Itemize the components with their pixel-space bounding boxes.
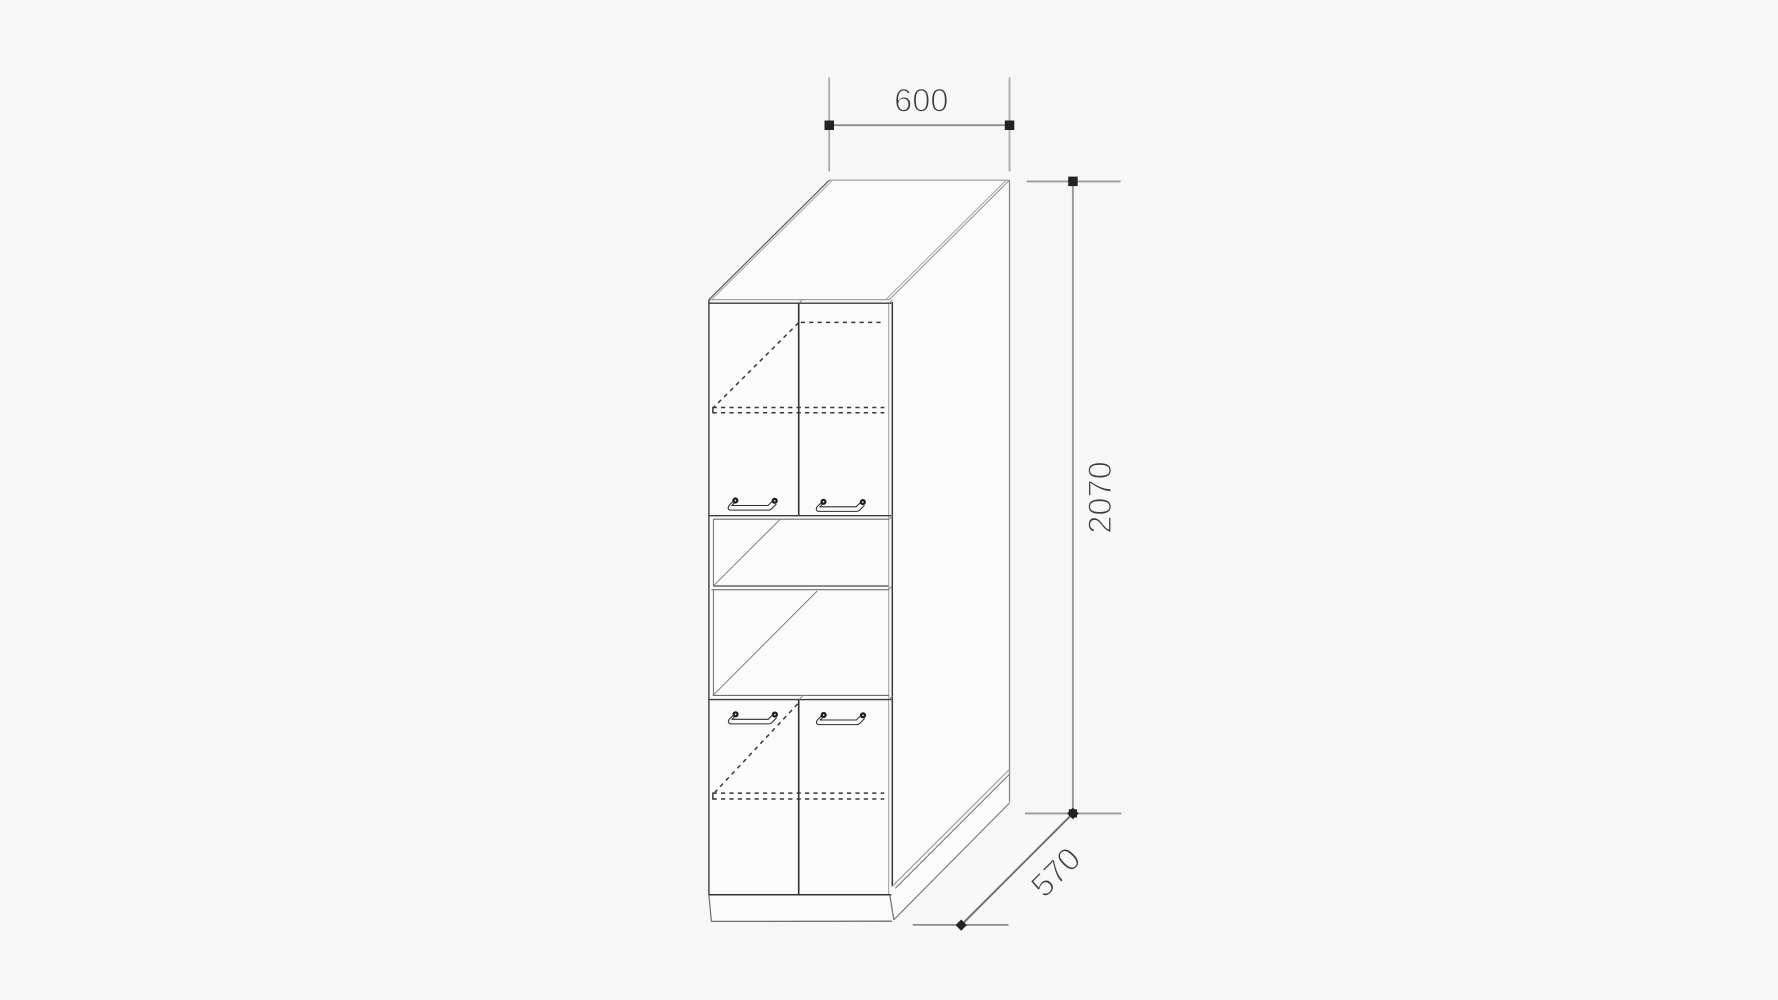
svg-text:2070: 2070 <box>1082 461 1118 533</box>
svg-text:600: 600 <box>894 83 948 119</box>
